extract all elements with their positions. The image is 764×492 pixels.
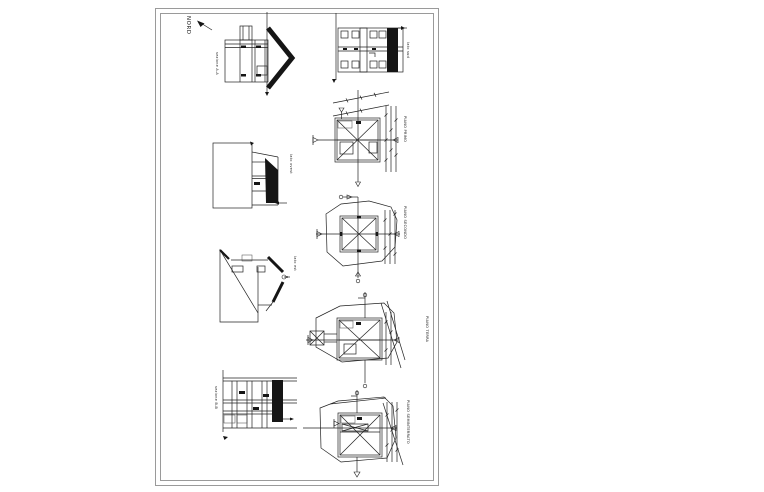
plan-terra-label: PIANO TERRA — [425, 316, 429, 343]
north-label: NORD — [185, 16, 191, 35]
elevation-sud-label: lato sud — [406, 42, 410, 58]
elevation-est-label: lato est — [293, 256, 297, 271]
section-aa-label: sezione A-A — [215, 52, 219, 75]
section-bb-label: sezione B-B — [214, 386, 218, 409]
solid-wall-block-2 — [272, 380, 283, 422]
plan-seminterrato-label: PIANO SEMINTERRATO — [406, 400, 410, 444]
page-background: NORD sezione A-A lato sud — [0, 0, 764, 492]
sheet-outer-border — [156, 9, 439, 486]
plan-secondo-label: PIANO SECONDO — [403, 206, 407, 239]
solid-wall-block — [387, 28, 398, 72]
elevation-ovest-label: lato ovest — [289, 154, 293, 174]
plan-primo-label: PIANO PRIMO — [403, 116, 407, 142]
architectural-drawing-sheet: NORD sezione A-A lato sud — [0, 0, 764, 492]
